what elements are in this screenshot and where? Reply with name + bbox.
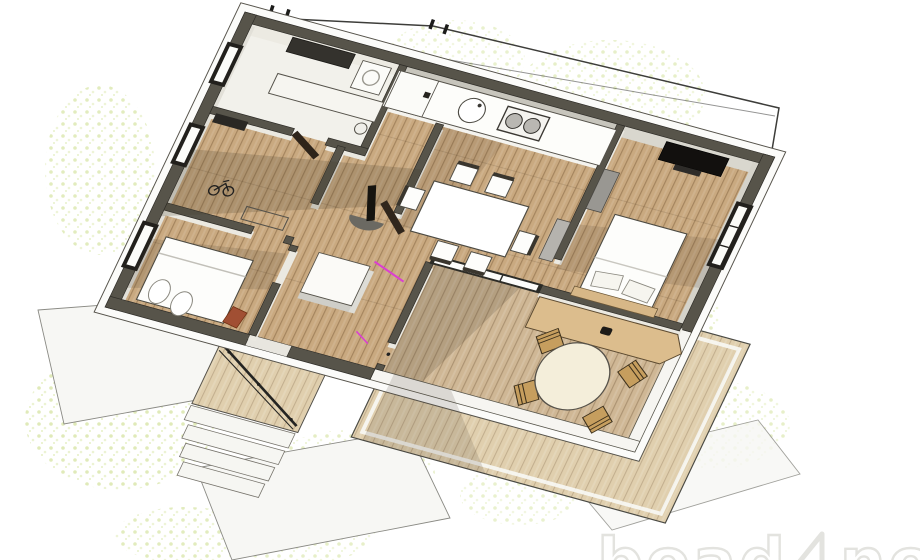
watermark: boad noff bbox=[597, 526, 920, 560]
tv-screen bbox=[366, 185, 376, 221]
watermark-prefix: boad bbox=[597, 526, 788, 560]
watermark-suffix: noff bbox=[840, 526, 920, 560]
floor-plan-render: boad noff bbox=[0, 0, 920, 560]
render-canvas: boad noff bbox=[0, 0, 920, 560]
